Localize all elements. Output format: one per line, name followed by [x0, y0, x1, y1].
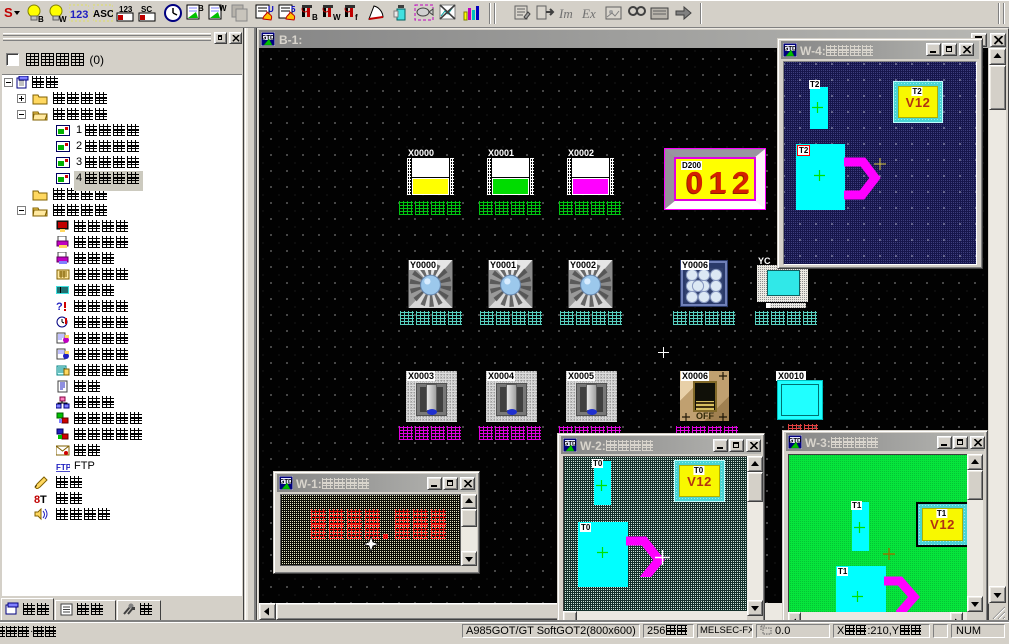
svg-text:Im: Im — [558, 6, 573, 21]
svg-text:W: W — [219, 4, 227, 13]
svg-text:f: f — [355, 13, 358, 22]
svg-text:ASC: ASC — [93, 9, 113, 20]
svg-text:FTP: FTP — [56, 463, 70, 472]
svg-text:U: U — [268, 5, 274, 14]
svg-text:5: 5 — [291, 5, 296, 14]
svg-text:123: 123 — [70, 9, 88, 21]
svg-text:B: B — [38, 15, 44, 23]
svg-text:S: S — [4, 5, 13, 20]
svg-text:B: B — [198, 4, 204, 13]
svg-text:B: B — [312, 13, 318, 22]
svg-text:Ex: Ex — [581, 6, 596, 21]
svg-text:W: W — [333, 13, 341, 22]
svg-text:?: ? — [56, 301, 63, 313]
svg-text:W: W — [59, 15, 67, 23]
svg-text:T: T — [40, 494, 47, 505]
